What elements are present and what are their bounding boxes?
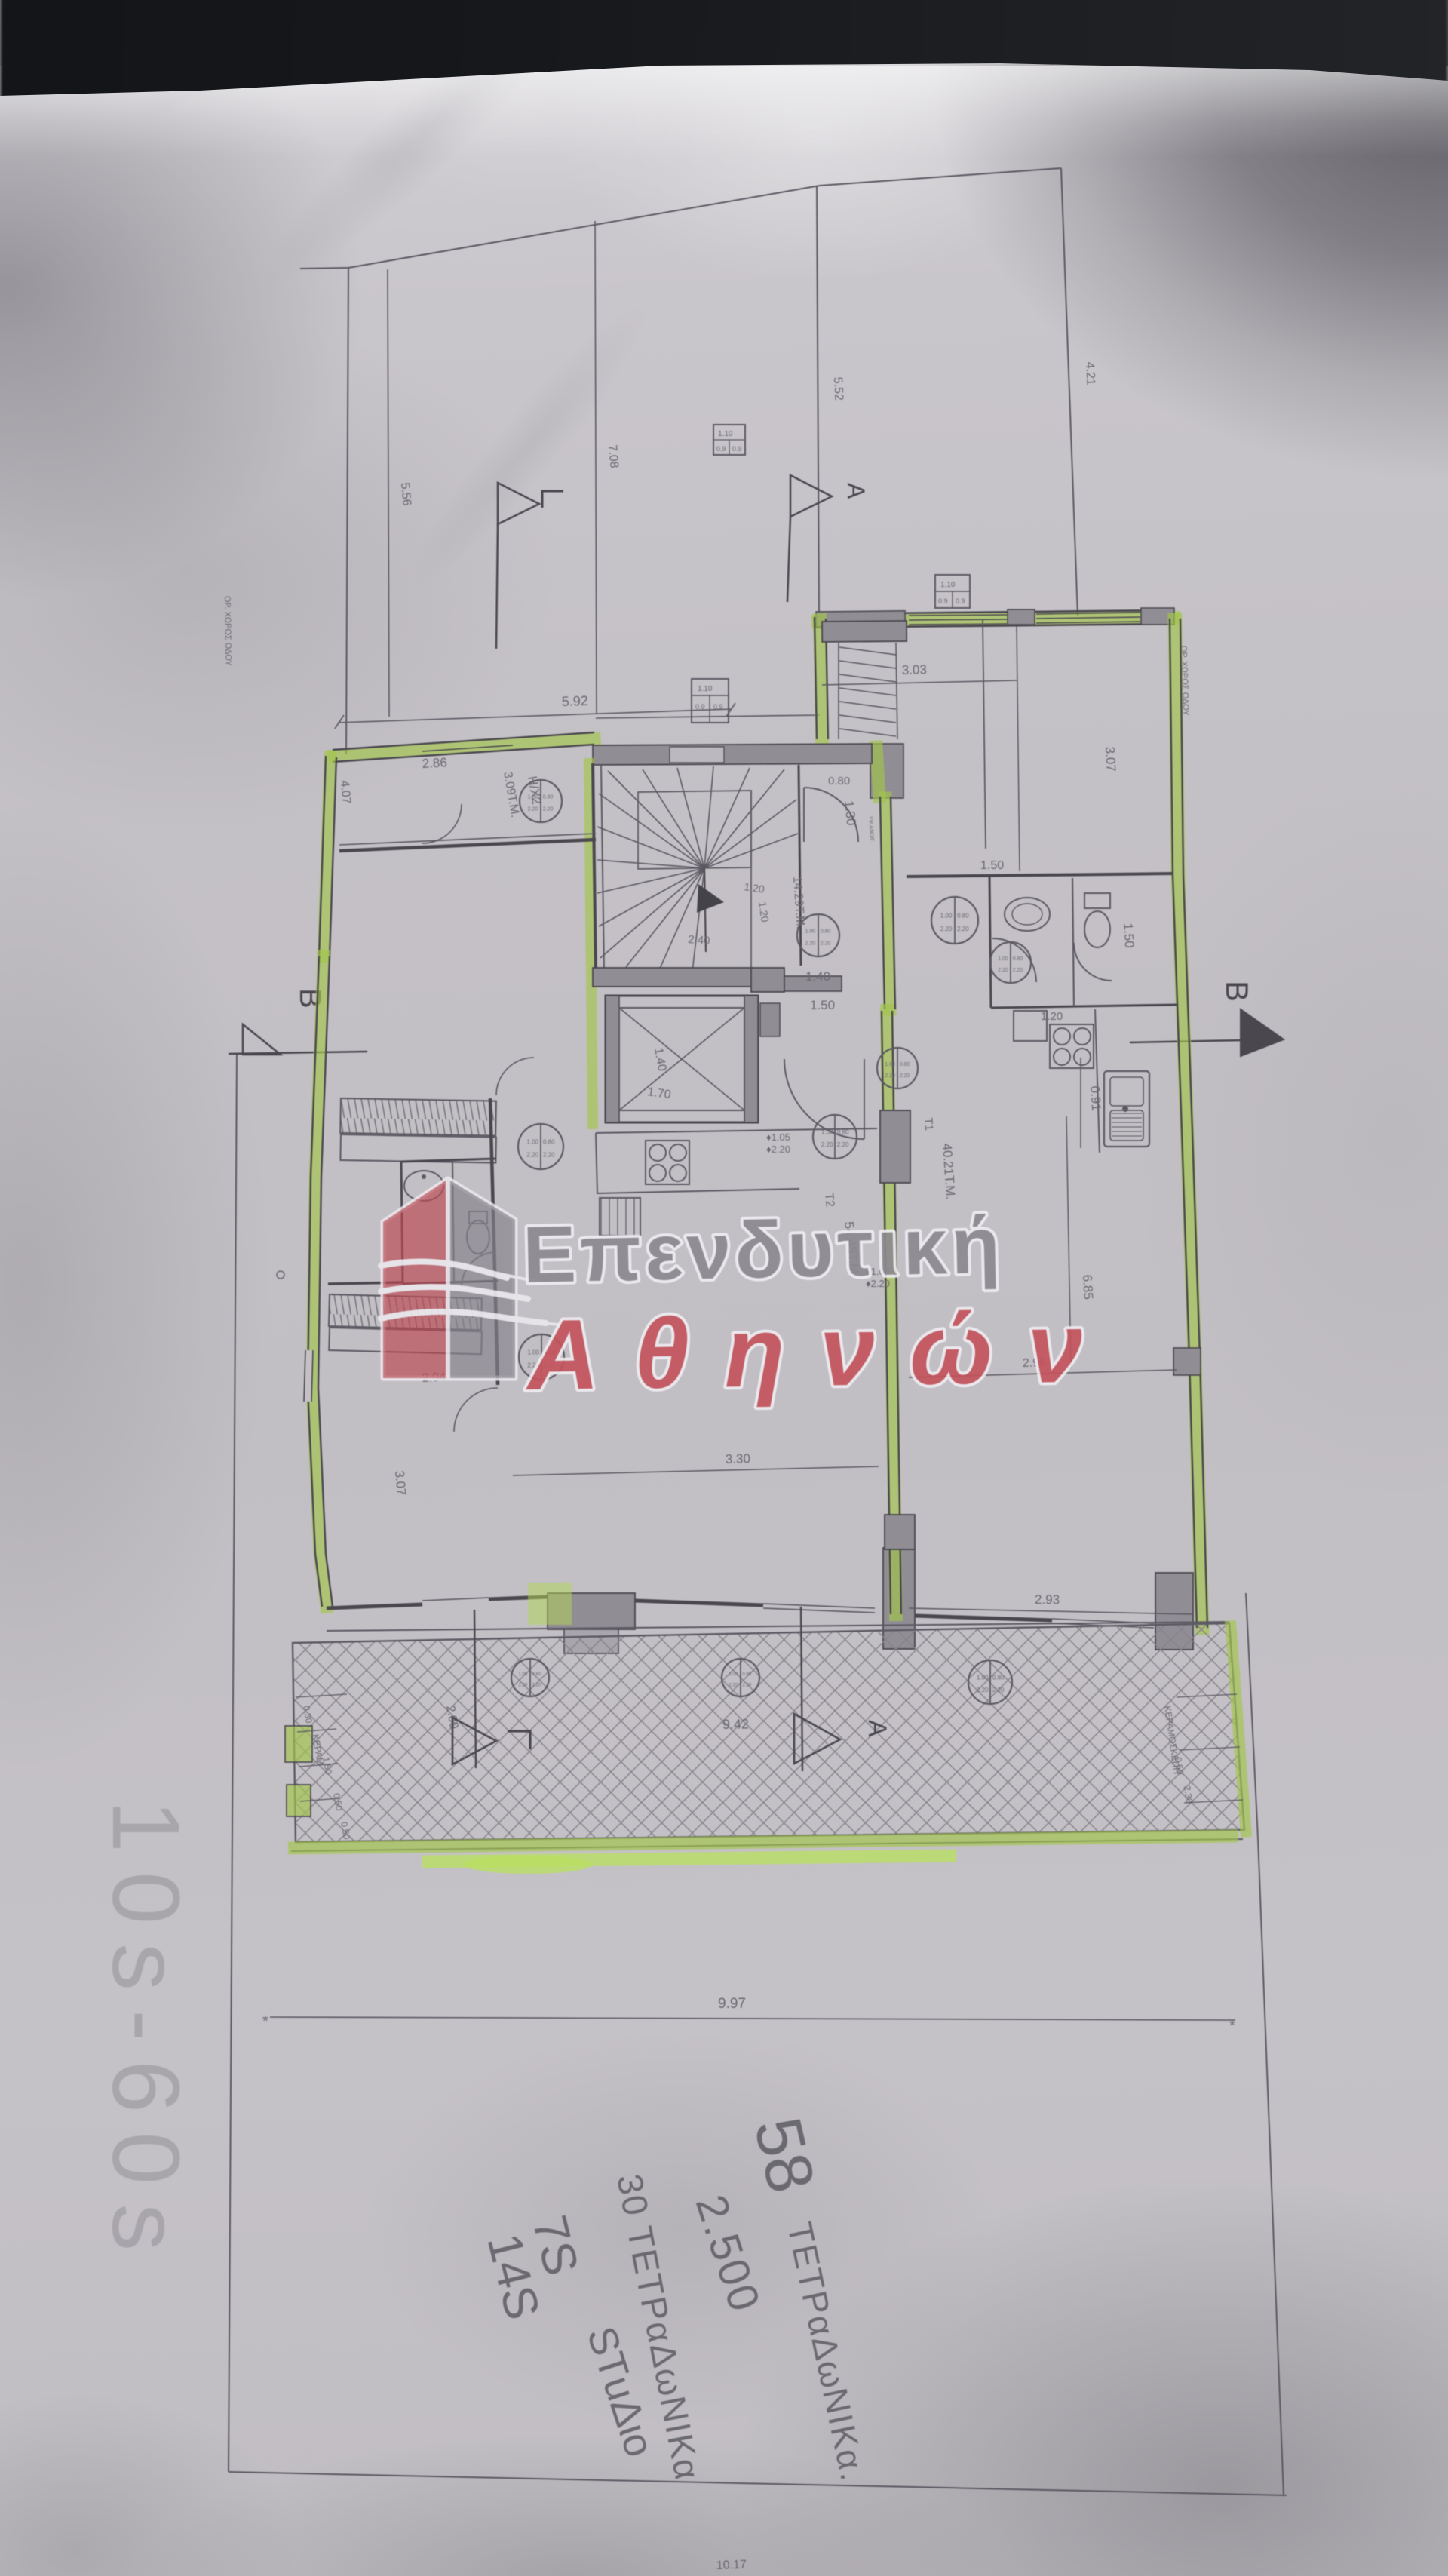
svg-text:0.80: 0.80 <box>992 1675 1005 1681</box>
svg-text:2.20: 2.20 <box>821 1141 833 1148</box>
svg-text:1.70: 1.70 <box>646 1085 671 1101</box>
svg-text:0.80: 0.80 <box>828 775 850 788</box>
svg-text:40.21Τ.Μ.: 40.21Τ.Μ. <box>940 1143 958 1200</box>
svg-text:5.56: 5.56 <box>398 482 413 507</box>
svg-text:3.30: 3.30 <box>726 1451 751 1466</box>
svg-text:1.00: 1.00 <box>821 1129 833 1136</box>
svg-text:2.20: 2.20 <box>900 1073 910 1079</box>
svg-text:5.92: 5.92 <box>561 693 588 709</box>
svg-text:ΥΨ.ΑΝΟΙΓ.: ΥΨ.ΑΝΟΙΓ. <box>867 816 874 843</box>
svg-text:B: B <box>1219 981 1255 1002</box>
svg-text:0.91: 0.91 <box>1088 1085 1103 1111</box>
svg-text:2.20: 2.20 <box>837 1141 849 1148</box>
svg-text:2.20: 2.20 <box>532 1683 541 1687</box>
svg-text:9.42: 9.42 <box>722 1716 749 1732</box>
svg-text:1.20: 1.20 <box>744 880 765 895</box>
svg-text:2.20: 2.20 <box>992 1687 1005 1693</box>
svg-text:Αθηνών: Αθηνών <box>524 1291 1118 1411</box>
svg-text:7.08: 7.08 <box>606 444 621 469</box>
svg-text:Επενδυτική: Επενδυτική <box>522 1201 1005 1300</box>
svg-text:♦2.20: ♦2.20 <box>766 1144 790 1155</box>
svg-text:2.20: 2.20 <box>957 926 969 932</box>
svg-text:1.00: 1.00 <box>729 1672 738 1677</box>
svg-text:0.80: 0.80 <box>532 1672 541 1677</box>
svg-text:3.07: 3.07 <box>1103 746 1118 772</box>
svg-text:1.00: 1.00 <box>526 1138 538 1145</box>
svg-text:2.20: 2.20 <box>998 968 1008 973</box>
svg-text:0.80: 0.80 <box>1013 956 1023 962</box>
svg-text:1.40: 1.40 <box>652 1047 668 1073</box>
svg-text:58: 58 <box>740 2111 829 2200</box>
svg-text:ΟΡ. ΧΩΡΟΣ ΟΔΟΥ: ΟΡ. ΧΩΡΟΣ ΟΔΟΥ <box>222 596 233 667</box>
svg-text:*: * <box>262 2013 268 2030</box>
svg-text:2.20: 2.20 <box>543 807 554 812</box>
svg-text:10.17: 10.17 <box>716 2559 747 2572</box>
svg-text:10s-60s: 10s-60s <box>93 1800 199 2270</box>
svg-text:2.20: 2.20 <box>528 807 538 812</box>
svg-text:1.00: 1.00 <box>940 912 953 919</box>
svg-text:2.20: 2.20 <box>1013 968 1023 973</box>
svg-text:0.80: 0.80 <box>837 1129 849 1136</box>
svg-text:0.9: 0.9 <box>713 703 723 711</box>
svg-text:2.20: 2.20 <box>526 1152 538 1159</box>
svg-text:1.50: 1.50 <box>1121 923 1137 948</box>
svg-text:2.20: 2.20 <box>885 1073 895 1079</box>
svg-text:1.00: 1.00 <box>528 795 538 800</box>
svg-text:1.00: 1.00 <box>805 929 816 935</box>
svg-text:*: * <box>1229 2018 1235 2034</box>
svg-text:1.40: 1.40 <box>805 969 830 984</box>
svg-text:0.80: 0.80 <box>900 1062 910 1067</box>
svg-text:2.20: 2.20 <box>821 941 831 947</box>
svg-text:2.20: 2.20 <box>977 1687 989 1693</box>
svg-text:2.500: 2.500 <box>686 2189 770 2319</box>
svg-text:0.80: 0.80 <box>957 912 969 919</box>
svg-text:2.20: 2.20 <box>519 1683 528 1687</box>
svg-text:0.9: 0.9 <box>716 445 726 453</box>
svg-text:2.20: 2.20 <box>729 1683 738 1687</box>
svg-text:0.80: 0.80 <box>543 1138 555 1145</box>
svg-text:9.97: 9.97 <box>718 1996 746 2012</box>
svg-text:1.10: 1.10 <box>698 685 713 693</box>
svg-text:ΤΕΤΡαΔωΝΙΚα.: ΤΕΤΡαΔωΝΙΚα. <box>780 2218 873 2485</box>
svg-text:2.40: 2.40 <box>688 933 710 947</box>
svg-text:2.20: 2.20 <box>805 941 816 947</box>
svg-text:1.00: 1.00 <box>885 1062 895 1067</box>
svg-text:♦1.05: ♦1.05 <box>766 1131 790 1143</box>
svg-text:3.09Τ.Μ.: 3.09Τ.Μ. <box>501 771 521 818</box>
svg-text:0.80: 0.80 <box>743 1672 752 1677</box>
svg-text:1.00: 1.00 <box>519 1672 528 1677</box>
svg-text:2.86: 2.86 <box>422 755 447 771</box>
svg-text:1.00: 1.00 <box>998 956 1008 962</box>
svg-text:3.07: 3.07 <box>392 1470 409 1497</box>
svg-text:4.07: 4.07 <box>338 780 353 805</box>
svg-text:0.9: 0.9 <box>732 445 742 453</box>
svg-text:1.10: 1.10 <box>718 430 733 438</box>
svg-text:1.50: 1.50 <box>810 998 835 1012</box>
svg-text:2.20: 2.20 <box>743 1683 752 1687</box>
svg-text:2.93: 2.93 <box>1035 1592 1060 1607</box>
svg-text:0.80: 0.80 <box>543 795 554 800</box>
svg-text:Τ1: Τ1 <box>922 1117 935 1131</box>
svg-text:1.20: 1.20 <box>1041 1010 1063 1023</box>
svg-text:2.20: 2.20 <box>543 1152 555 1159</box>
svg-text:1.00: 1.00 <box>977 1675 989 1681</box>
svg-text:14.29T.M.: 14.29T.M. <box>790 876 807 929</box>
svg-text:0.80: 0.80 <box>821 929 831 935</box>
svg-text:2.20: 2.20 <box>940 926 953 932</box>
svg-text:1.50: 1.50 <box>980 859 1004 872</box>
svg-text:1.20: 1.20 <box>756 901 772 923</box>
svg-text:0.9: 0.9 <box>695 703 705 711</box>
svg-text:A: A <box>863 1720 891 1737</box>
